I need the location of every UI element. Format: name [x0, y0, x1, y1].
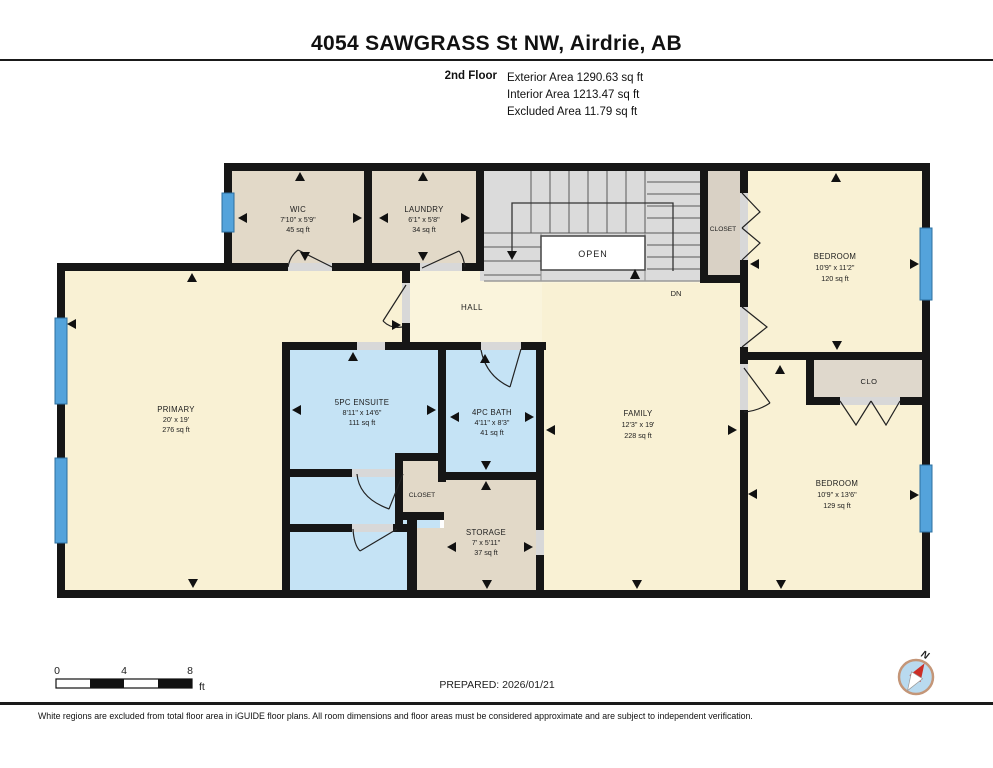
label-ensuite-dims: 8'11" x 14'6" [343, 408, 382, 417]
label-closet-top: CLOSET [710, 226, 736, 233]
floorplan-drawing: WIC 7'10" x 5'9" 45 sq ft LAUNDRY 6'1" x… [0, 130, 993, 702]
page-title: 4054 SAWGRASS St NW, Airdrie, AB [0, 32, 993, 56]
label-ensuite-name: 5PC ENSUITE [335, 398, 389, 407]
exterior-area: Exterior Area 1290.63 sq ft [507, 70, 643, 87]
label-clo: CLO [861, 377, 878, 386]
area-summary: Exterior Area 1290.63 sq ft Interior Are… [507, 70, 643, 121]
label-bath-area: 41 sq ft [480, 428, 504, 437]
header-divider [0, 59, 993, 61]
label-hall: HALL [461, 303, 483, 312]
label-storage-dims: 7' x 5'11" [472, 538, 501, 547]
label-laundry-area: 34 sq ft [412, 225, 436, 234]
window-bedroom-bottom [920, 465, 932, 532]
label-primary-area: 276 sq ft [162, 425, 190, 434]
room-closet-top-floor [704, 167, 744, 283]
scale-tick-8: 8 [187, 665, 193, 677]
room-storage-floor-a [444, 476, 538, 532]
scale-tick-0: 0 [54, 665, 60, 677]
room-bedroom-top-floor [744, 167, 926, 357]
label-bedroom-bottom-area: 129 sq ft [823, 501, 851, 510]
label-wic-name: WIC [290, 205, 306, 214]
label-primary-dims: 20' x 19' [163, 415, 190, 424]
window-primary-2 [55, 458, 67, 543]
window-bedroom-top [920, 228, 932, 300]
interior-area: Interior Area 1213.47 sq ft [507, 87, 643, 104]
scale-unit: ft [199, 681, 205, 693]
floor-label: 2nd Floor [300, 70, 497, 82]
label-storage-area: 37 sq ft [474, 548, 498, 557]
footer-divider [0, 702, 993, 705]
scale-bar: 0 4 8 ft [54, 665, 205, 693]
label-primary-name: PRIMARY [157, 405, 195, 414]
window-primary-1 [55, 318, 67, 404]
label-family-dims: 12'3" x 19' [622, 420, 655, 429]
floorplan-page: 4054 SAWGRASS St NW, Airdrie, AB 2nd Flo… [0, 0, 993, 768]
window-wic [222, 193, 234, 232]
label-bath-dims: 4'11" x 8'3" [475, 418, 510, 427]
label-bedroom-bottom-dims: 10'9" x 13'6" [817, 490, 857, 499]
label-bedroom-top-name: BEDROOM [814, 252, 856, 261]
label-laundry-name: LAUNDRY [404, 205, 444, 214]
label-open: OPEN [578, 249, 608, 259]
label-dn: DN [671, 289, 682, 298]
label-bedroom-top-area: 120 sq ft [821, 274, 849, 283]
label-wic-dims: 7'10" x 5'9" [280, 215, 316, 224]
label-family-name: FAMILY [624, 409, 653, 418]
label-storage-name: STORAGE [466, 528, 506, 537]
label-bath-name: 4PC BATH [472, 408, 512, 417]
label-bedroom-top-dims: 10'9" x 11'2" [816, 263, 855, 272]
label-ensuite-area: 111 sq ft [349, 418, 376, 427]
label-wic-area: 45 sq ft [286, 225, 310, 234]
label-laundry-dims: 6'1" x 5'8" [408, 215, 440, 224]
footer-note: White regions are excluded from total fl… [38, 711, 968, 721]
excluded-area: Excluded Area 11.79 sq ft [507, 104, 643, 121]
label-bedroom-bottom-name: BEDROOM [816, 479, 858, 488]
scale-tick-4: 4 [121, 665, 127, 677]
label-closet-mid: CLOSET [409, 492, 435, 499]
label-family-area: 228 sq ft [624, 431, 652, 440]
compass-icon: N [899, 649, 933, 694]
room-closet-mid-floor [399, 457, 444, 517]
prepared-date: PREPARED: 2026/01/21 [439, 679, 555, 691]
